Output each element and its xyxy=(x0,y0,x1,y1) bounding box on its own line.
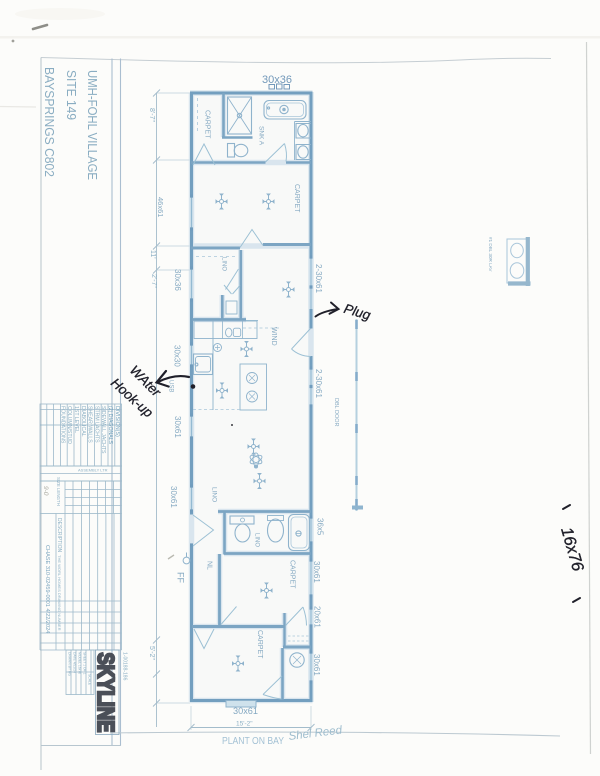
svg-text:15'-2": 15'-2" xyxy=(236,721,253,728)
svg-text:#1 DBL 30R LAV: #1 DBL 30R LAV xyxy=(488,237,493,272)
svg-text:1ST LEVEL: 1ST LEVEL xyxy=(73,406,79,433)
svg-text:MODEL 16x76: MODEL 16x76 xyxy=(78,652,82,674)
svg-text:30x61: 30x61 xyxy=(233,706,258,717)
svg-text:DIABOLICAL: DIABOLICAL xyxy=(80,406,86,437)
svg-text:CARPET: CARPET xyxy=(293,184,300,213)
svg-text:CARPET: CARPET xyxy=(204,110,211,139)
svg-text:30x61: 30x61 xyxy=(312,561,321,583)
svg-text:9-0: 9-0 xyxy=(42,486,49,496)
svg-text:THE WORL HOMES DRAWING NUMBER: THE WORL HOMES DRAWING NUMBER xyxy=(57,555,62,631)
svg-text:DESCRIPTION: DESCRIPTION xyxy=(56,518,62,553)
svg-text:UMH-FOHL VILLAGE: UMH-FOHL VILLAGE xyxy=(85,70,100,180)
svg-text:ASSEMBLY LTR: ASSEMBLY LTR xyxy=(78,468,108,473)
svg-text:NL: NL xyxy=(206,561,213,570)
svg-text:SKYLINE: SKYLINE xyxy=(93,653,119,733)
svg-text:WIND: WIND xyxy=(270,327,277,346)
svg-text:DIVISION(S): DIVISION(S) xyxy=(114,406,120,437)
svg-text:5'-2": 5'-2" xyxy=(148,646,155,660)
svg-text:SIDEWALL JACHTS: SIDEWALL JACHTS xyxy=(100,406,106,454)
svg-text:STRM LACHTS: STRM LACHTS xyxy=(93,406,99,443)
svg-text:SIZE LENGTH: SIZE LENGTH xyxy=(56,477,61,506)
svg-text:CHASE 310-02459-0001 4/22/2024: CHASE 310-02459-0001 4/22/2024 xyxy=(44,545,50,633)
svg-text:DRAWN BY RG: DRAWN BY RG xyxy=(68,652,72,676)
svg-text:DBL DOOR: DBL DOOR xyxy=(333,398,339,427)
svg-text:36x5: 36x5 xyxy=(316,518,325,536)
svg-text:FF: FF xyxy=(176,572,186,583)
svg-text:SNK A: SNK A xyxy=(258,126,265,146)
svg-text:2-30x61: 2-30x61 xyxy=(314,369,323,398)
svg-text:2'-7": 2'-7" xyxy=(150,274,157,288)
svg-text:SHEAR WALLS: SHEAR WALLS xyxy=(87,406,93,443)
svg-text:PLANT ON BAY: PLANT ON BAY xyxy=(222,735,284,747)
svg-text:20x61: 20x61 xyxy=(313,606,322,628)
svg-text:SITE 149: SITE 149 xyxy=(64,70,79,120)
svg-text:CARPET: CARPET xyxy=(256,630,263,659)
svg-text:(2) DIAGONALS: (2) DIAGONALS xyxy=(107,406,113,445)
svg-text:CARPET: CARPET xyxy=(289,560,296,589)
svg-text:BAYSPRINGS C802: BAYSPRINGS C802 xyxy=(42,67,57,177)
svg-text:11': 11' xyxy=(149,250,156,259)
svg-text:LINO: LINO xyxy=(254,533,260,547)
svg-text:LINO: LINO xyxy=(211,487,218,502)
svg-text:2-30x61: 2-30x61 xyxy=(314,264,323,293)
svg-text:SCALE: SCALE xyxy=(88,674,92,686)
svg-text:30x30: 30x30 xyxy=(173,345,182,367)
svg-text:SHEET 1 OF 1: SHEET 1 OF 1 xyxy=(83,652,87,675)
svg-text:LINO: LINO xyxy=(221,257,227,271)
svg-text:DATE 4/22/24: DATE 4/22/24 xyxy=(73,652,77,673)
svg-text:FOUNDATIONS: FOUNDATIONS xyxy=(59,406,65,444)
svg-text:46x61: 46x61 xyxy=(156,197,165,217)
svg-text:1-00188-186: 1-00188-186 xyxy=(122,652,128,681)
svg-text:8'-7": 8'-7" xyxy=(148,108,155,122)
svg-text:COLUMN/STUD: COLUMN/STUD xyxy=(66,406,72,444)
svg-text:30x61: 30x61 xyxy=(312,654,321,676)
svg-text:30x36: 30x36 xyxy=(173,269,182,291)
svg-text:30x61: 30x61 xyxy=(169,486,178,508)
svg-text:30x61: 30x61 xyxy=(173,416,182,438)
